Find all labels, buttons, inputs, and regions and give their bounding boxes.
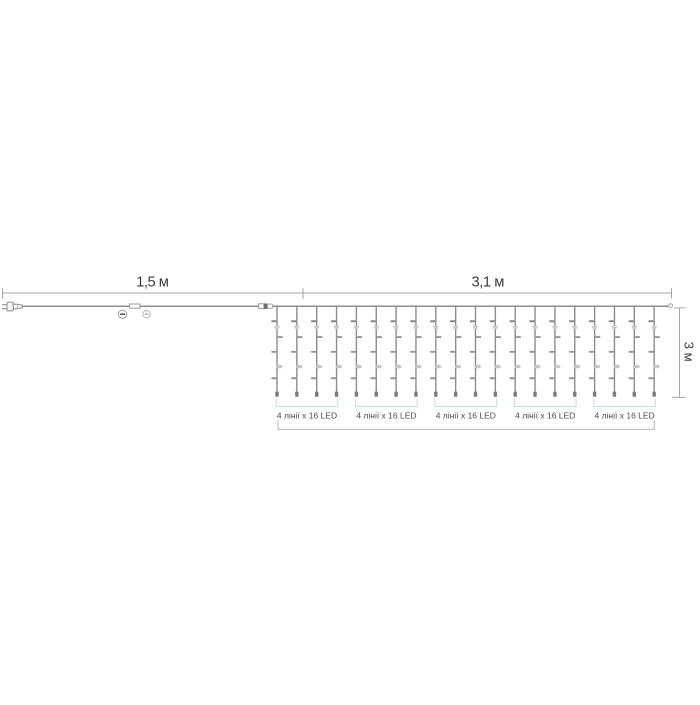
svg-text:4 лінії x 16 LED: 4 лінії x 16 LED xyxy=(436,410,496,420)
svg-text:4 лінії x 16 LED: 4 лінії x 16 LED xyxy=(515,410,575,420)
svg-text:1,5 м: 1,5 м xyxy=(136,275,169,291)
svg-text:3,1 м: 3,1 м xyxy=(472,275,505,291)
svg-text:4 лінії x 16 LED: 4 лінії x 16 LED xyxy=(356,410,416,420)
svg-text:4 лінії x 16 LED: 4 лінії x 16 LED xyxy=(277,410,337,420)
svg-text:3 м: 3 м xyxy=(682,342,697,362)
svg-text:4 лінії x 16 LED: 4 лінії x 16 LED xyxy=(595,410,655,420)
